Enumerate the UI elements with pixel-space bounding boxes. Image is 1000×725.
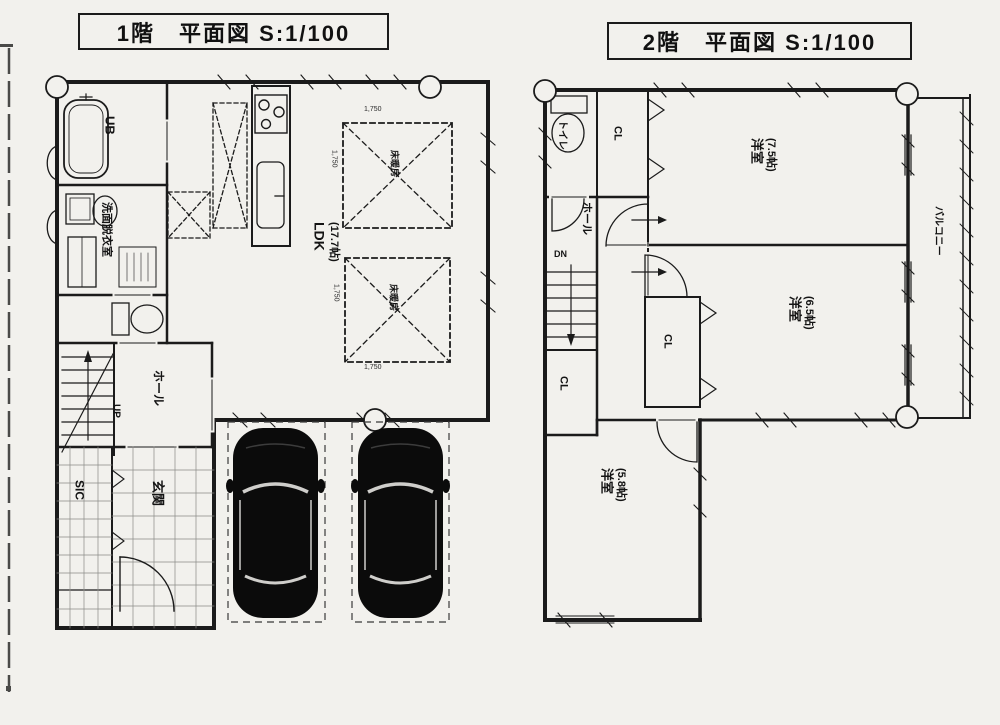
washroom-note-box [119, 247, 156, 287]
door-triangle [112, 532, 124, 550]
label-room-58-name: 洋室 [600, 468, 614, 502]
label-sic: SIC [73, 480, 86, 500]
door-triangle [700, 302, 716, 324]
label-closet-stairs: CL [557, 376, 569, 391]
scan-artifacts [0, 44, 13, 692]
floorplan-drawing [0, 0, 1000, 725]
label-room-75: 洋室 (7.5帖) [750, 138, 776, 172]
entrance-door-arc [120, 557, 174, 611]
stairs-down [545, 265, 597, 340]
label-entrance: 玄関 [151, 480, 165, 506]
label-room-65-name: 洋室 [788, 296, 802, 330]
door-triangle [700, 378, 716, 400]
floor2-title: 2階 平面図 S:1/100 [607, 22, 912, 60]
door-triangle [648, 99, 664, 121]
label-balcony: バルコニー [932, 206, 943, 256]
window-marks [218, 75, 495, 427]
label-hall-2f: ホール [580, 202, 592, 235]
label-hall-1f: ホール [152, 370, 165, 406]
label-toilet-2f: トイレ [556, 120, 567, 150]
washer-icon [66, 194, 94, 224]
dim-heating2-bottom: 1,750 [364, 364, 382, 371]
label-ldk: LDK (17.7帖) [312, 222, 339, 262]
floor1-title: 1階 平面図 S:1/100 [78, 13, 389, 50]
stairs-up-arrowhead [84, 350, 92, 362]
label-room-58-size: (5.8帖) [615, 468, 627, 502]
label-up: UP [110, 404, 121, 418]
door-triangle [112, 470, 124, 488]
dim-heating1-top: 1,750 [364, 106, 382, 113]
floor1-title-text: 1階 平面図 S:1/100 [117, 16, 350, 48]
door-triangle [648, 158, 664, 180]
scanned-floorplan-page: 1階 平面図 S:1/100 2階 平面図 S:1/100 UB 洗面脱衣室 ホ… [0, 0, 1000, 725]
label-floor-heating-1: 床暖房 [389, 150, 398, 177]
bathtub-icon [64, 94, 108, 178]
label-ldk-size: (17.7帖) [328, 222, 340, 262]
label-room-65-size: (6.5帖) [803, 296, 815, 330]
label-closet-upper: CL [611, 126, 623, 141]
appliance-dashed-box [168, 103, 247, 238]
tile-grid [57, 447, 214, 628]
dim-heating1-left: 1,750 [330, 150, 337, 168]
label-room-58: 洋室 (5.8帖) [600, 468, 626, 502]
balcony-rail [908, 95, 973, 418]
car-icon [226, 428, 325, 618]
label-room-65: 洋室 (6.5帖) [788, 296, 814, 330]
label-floor-heating-2: 床暖房 [388, 284, 397, 311]
kitchen-sink-icon [257, 162, 284, 228]
closet-box [645, 297, 700, 407]
vanity-cabinet [68, 237, 96, 287]
label-room-75-name: 洋室 [750, 138, 764, 172]
parking-area [226, 422, 450, 622]
label-ldk-name: LDK [312, 222, 327, 262]
label-washroom: 洗面脱衣室 [100, 202, 112, 257]
label-dn: DN [554, 250, 567, 259]
stairs-down-arrowhead [567, 334, 575, 346]
label-room-75-size: (7.5帖) [765, 138, 777, 172]
window-marks [539, 83, 914, 627]
label-closet-middle: CL [661, 334, 673, 349]
floor2-title-text: 2階 平面図 S:1/100 [643, 25, 876, 57]
dim-heating2-left: 1,750 [332, 284, 339, 302]
stairs-up [62, 352, 114, 452]
label-ub: UB [103, 116, 117, 135]
stove-icon [255, 95, 287, 133]
column-datum-circles [534, 80, 918, 428]
car-icon [351, 428, 450, 618]
toilet-icon [112, 303, 163, 335]
